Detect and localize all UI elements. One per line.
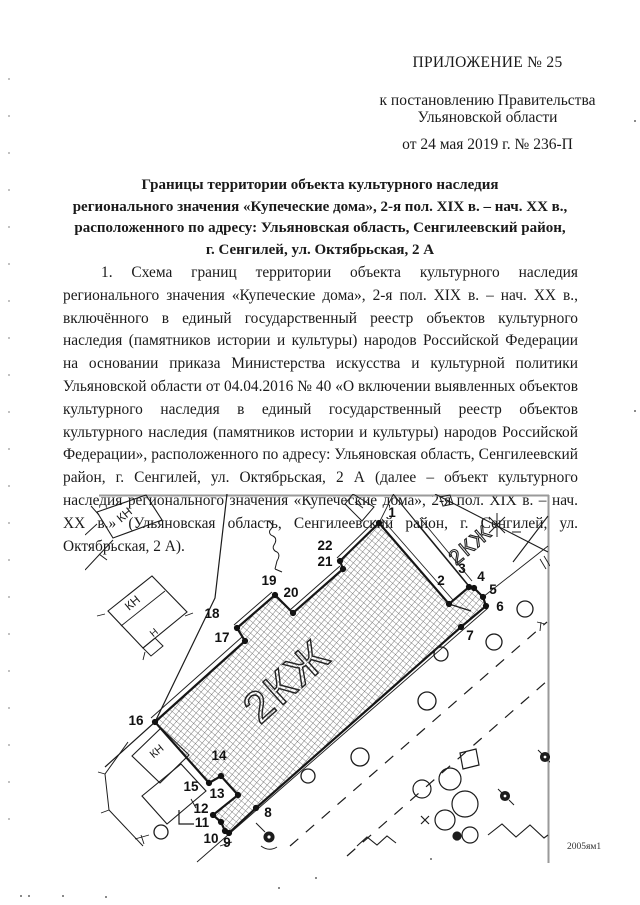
boundary-point-label: 16 bbox=[128, 713, 144, 728]
boundary-point-label: 10 bbox=[203, 831, 218, 846]
document-page: ПРИЛОЖЕНИЕ № 25 к постановлению Правител… bbox=[0, 0, 640, 905]
boundary-point-label: 12 bbox=[193, 801, 208, 816]
boundary-point-label: 11 bbox=[195, 815, 210, 830]
boundary-point-label: 14 bbox=[211, 748, 227, 763]
building-c-label: КН bbox=[148, 742, 167, 760]
boundary-point-label: 4 bbox=[477, 569, 485, 584]
subheader-line-2: Ульяновской области bbox=[370, 109, 605, 126]
boundary-point-label: 13 bbox=[209, 786, 225, 801]
title-line-4: г. Сенгилей, ул. Октябрьская, 2 А bbox=[58, 240, 582, 262]
boundary-point-dot bbox=[480, 594, 486, 600]
boundary-point-dot bbox=[218, 773, 224, 779]
boundary-point-label: 15 bbox=[183, 779, 199, 794]
boundary-point-label: 7 bbox=[466, 628, 474, 643]
boundary-point-dot bbox=[337, 558, 343, 564]
scan-noise-left-edge bbox=[8, 78, 10, 848]
scan-noise-dot bbox=[62, 895, 64, 897]
boundary-point-label: 18 bbox=[204, 606, 220, 621]
boundary-point-dot bbox=[218, 819, 224, 825]
boundary-point-label: 17 bbox=[214, 630, 229, 645]
boundary-point-dot bbox=[340, 566, 346, 572]
pole-icon bbox=[498, 789, 514, 805]
boundary-point-dot bbox=[206, 780, 212, 786]
boundary-point-dot bbox=[210, 812, 216, 818]
boundary-point-label: 22 bbox=[317, 538, 332, 553]
title-line-2: регионального значения «Купеческие дома»… bbox=[58, 197, 582, 219]
vegetation-cluster bbox=[413, 749, 479, 843]
boundary-point-label: 19 bbox=[261, 573, 276, 588]
map-corner-note: 2005ям1 bbox=[567, 842, 601, 852]
map-svg: 2КЖ 2КЖ КН КН Н КН 123456789101112131415… bbox=[85, 494, 550, 866]
appendix-number: ПРИЛОЖЕНИЕ № 25 bbox=[370, 54, 605, 71]
boundary-point-label: 9 bbox=[223, 835, 231, 850]
boundary-point-dot bbox=[234, 625, 240, 631]
scan-noise-dot bbox=[20, 895, 22, 897]
building-a-label: КН bbox=[114, 505, 135, 526]
boundary-point-label: 21 bbox=[317, 554, 333, 569]
neighbor-building-corner bbox=[345, 494, 393, 523]
boundary-point-label: 8 bbox=[264, 805, 272, 820]
decree-date-line: от 24 мая 2019 г. № 236-П bbox=[370, 136, 605, 153]
subheader-line-1: к постановлению Правительства bbox=[370, 92, 605, 109]
header-block: ПРИЛОЖЕНИЕ № 25 к постановлению Правител… bbox=[370, 54, 605, 153]
conifer-symbol bbox=[489, 513, 521, 537]
boundary-point-dot bbox=[483, 603, 489, 609]
boundary-point-dot bbox=[222, 828, 228, 834]
title-line-3: расположенного по адресу: Ульяновская об… bbox=[58, 218, 582, 240]
boundary-point-label: 1 bbox=[388, 505, 396, 520]
fence-squiggle bbox=[268, 521, 282, 572]
boundary-point-label: 5 bbox=[489, 582, 497, 597]
title-line-1: Границы территории объекта культурного н… bbox=[58, 175, 582, 197]
boundary-point-dot bbox=[152, 719, 158, 725]
building-b-label: КН bbox=[122, 593, 143, 614]
boundary-point-dot bbox=[242, 638, 248, 644]
boundary-point-dot bbox=[376, 520, 382, 526]
boundary-point-dot bbox=[235, 792, 241, 798]
boundary-point-label: 3 bbox=[458, 561, 466, 576]
scan-noise-dot bbox=[315, 877, 317, 879]
boundary-point-dot bbox=[458, 624, 464, 630]
scan-noise-dot bbox=[278, 887, 280, 889]
scan-noise-dot bbox=[634, 120, 636, 122]
scan-noise-dot bbox=[105, 896, 107, 898]
pole-icon bbox=[256, 823, 277, 849]
scan-noise-dot bbox=[28, 895, 30, 897]
scan-noise-dot bbox=[430, 858, 432, 860]
boundary-map: 2КЖ 2КЖ КН КН Н КН 123456789101112131415… bbox=[85, 494, 550, 866]
building-b-inner-label: Н bbox=[148, 627, 161, 640]
scan-noise-dot bbox=[634, 410, 636, 412]
boundary-point-dot bbox=[290, 610, 296, 616]
boundary-point-dot bbox=[471, 585, 477, 591]
boundary-point-label: 2 bbox=[437, 573, 445, 588]
neighbor-use-label: 2КЖ bbox=[445, 520, 498, 569]
boundary-point-dot bbox=[272, 592, 278, 598]
boundary-point-label: 20 bbox=[283, 585, 298, 600]
boundary-point-label: 6 bbox=[496, 599, 504, 614]
document-title: Границы территории объекта культурного н… bbox=[58, 175, 582, 261]
boundary-point-dot bbox=[253, 805, 259, 811]
boundary-point-dot bbox=[446, 601, 452, 607]
building-b bbox=[97, 576, 193, 660]
